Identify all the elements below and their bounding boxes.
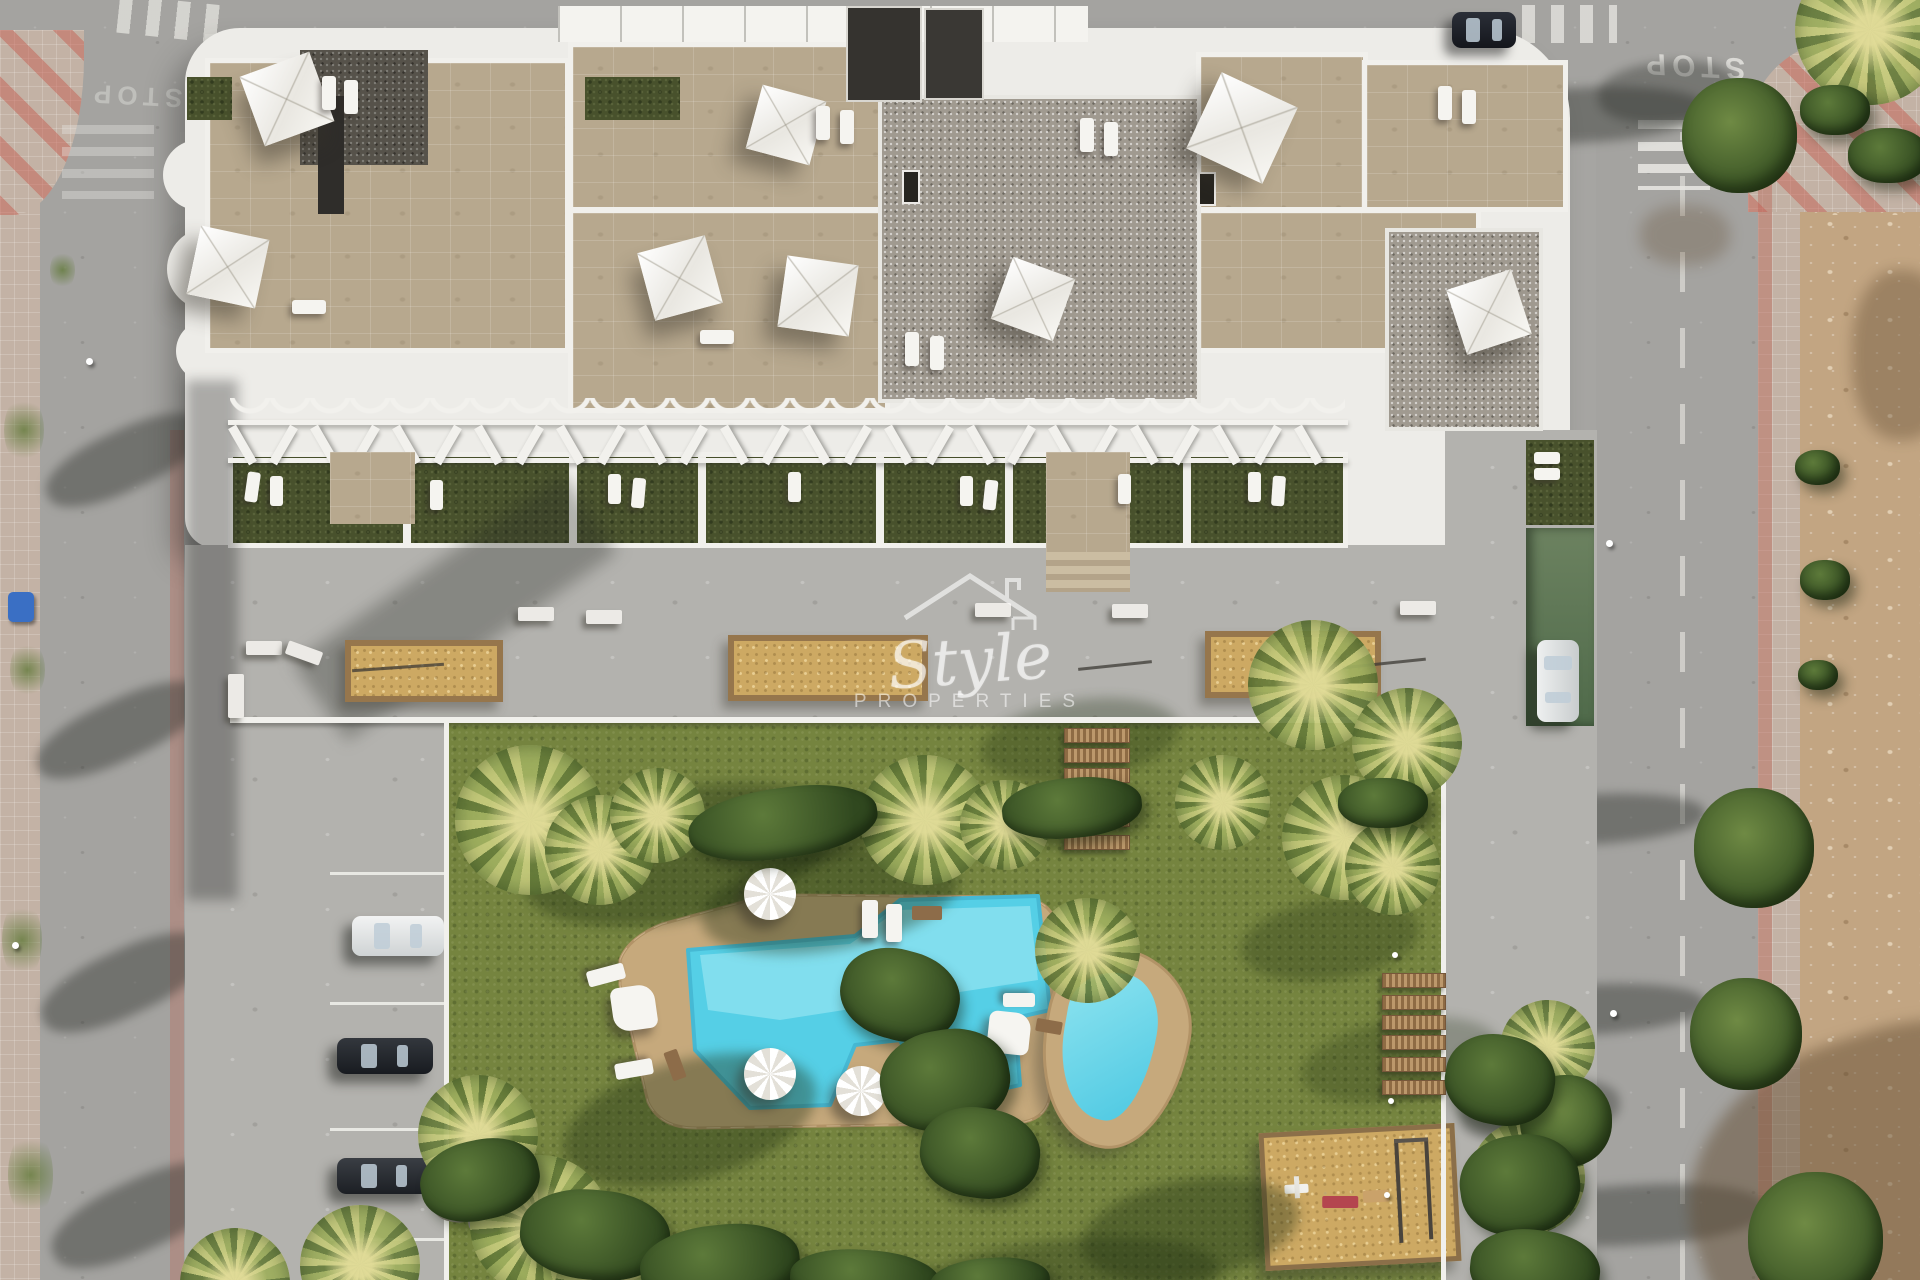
aerial-render-scene: STOP STOP [0, 0, 1920, 1280]
sun-lounger [1462, 90, 1476, 124]
terrace-bench [228, 674, 244, 718]
garden-lamp [1392, 952, 1398, 958]
sun-lounger [1248, 472, 1261, 502]
car-parked-white [352, 916, 444, 956]
sidewalk-weeds [50, 250, 75, 290]
terrace-bench [975, 603, 1011, 617]
garden-lamp [1388, 1098, 1394, 1104]
sun-lounger [886, 904, 902, 942]
sidewalk-weeds [10, 640, 45, 700]
fitness-bench-red [1322, 1196, 1358, 1208]
sun-lounger [960, 476, 973, 506]
wooden-bench [1382, 1035, 1446, 1050]
sun-lounger [292, 300, 326, 314]
street-lamp [12, 942, 19, 949]
building-top-rooms [558, 6, 1088, 42]
parking-stall-line [330, 1002, 445, 1005]
roof-elevator-box [924, 8, 984, 100]
crosswalk-top-right [1522, 5, 1617, 43]
left-curb-red-band [170, 430, 184, 1280]
sun-lounger [1534, 452, 1560, 464]
right-road-center-dashes [1680, 132, 1685, 1280]
fitness-frame-bar [1394, 1137, 1428, 1143]
pool-daybed [609, 983, 659, 1033]
sun-lounger [344, 80, 358, 114]
street-lamp [1606, 540, 1613, 547]
wooden-bench [1382, 1015, 1446, 1030]
sun-lounger [816, 106, 830, 140]
pool-parasol [744, 1048, 796, 1100]
roof-gravel-area [878, 95, 1201, 403]
sun-lounger [862, 900, 878, 938]
street-tree [1690, 978, 1802, 1090]
sun-lounger [1080, 118, 1094, 152]
street-lamp [1610, 1010, 1617, 1017]
terrace-bench [1400, 601, 1436, 615]
wooden-step [1064, 748, 1130, 763]
sun-lounger [1271, 476, 1286, 507]
sun-lounger [1104, 122, 1118, 156]
roof-skylight [902, 170, 920, 204]
sun-lounger [700, 330, 734, 344]
terrace-bench [518, 607, 554, 621]
crosswalk-left-faded [62, 125, 154, 199]
sun-lounger [631, 477, 647, 508]
wooden-bench [1382, 973, 1446, 988]
sun-lounger [788, 472, 801, 502]
rooftop-terrace [1362, 60, 1568, 212]
terrace-bench [1112, 604, 1148, 618]
sun-lounger [1118, 474, 1131, 504]
roof-elevator-box [846, 6, 922, 102]
sun-lounger [930, 336, 944, 370]
stop-marking-left: STOP [87, 78, 183, 114]
fitness-frame [1394, 1139, 1403, 1243]
fitness-frame [1424, 1139, 1433, 1239]
wooden-bench [1382, 1080, 1446, 1095]
sun-lounger [322, 76, 336, 110]
pool-mat [912, 906, 942, 920]
street-tree [1682, 78, 1797, 193]
sidewalk-weeds [4, 395, 44, 465]
sun-lounger [270, 476, 283, 506]
pergola-beam [228, 420, 1348, 425]
sun-lounger [430, 480, 443, 510]
entrance-steps [1046, 552, 1130, 592]
sun-lounger [905, 332, 919, 366]
parking-stall-line [330, 872, 445, 875]
roof-skylight [1198, 172, 1216, 206]
roof-hedge [585, 77, 680, 120]
recycling-bin [8, 592, 34, 622]
dirt-shrub [1795, 450, 1840, 485]
pool-parasol [836, 1066, 886, 1116]
sun-lounger [840, 110, 854, 144]
shade-sail [777, 255, 858, 336]
fitness-tstand-pole [1294, 1176, 1300, 1198]
sidewalk-weeds [8, 1130, 53, 1220]
car-parked-dark [337, 1158, 432, 1194]
dirt-shrub [1848, 128, 1920, 183]
car-parked-dark [337, 1038, 433, 1074]
dirt-shrub [1800, 560, 1850, 600]
terrace-bench [246, 641, 282, 655]
terrace-bench [586, 610, 622, 624]
sidewalk-weeds [2, 900, 42, 980]
shade-sail [186, 225, 269, 308]
private-garden [1191, 457, 1343, 543]
sun-lounger [1534, 468, 1560, 480]
sun-lounger [1003, 993, 1035, 1007]
dirt-shrub [1798, 660, 1838, 690]
garden-shrub [1338, 778, 1428, 828]
dirt-shrub [1800, 85, 1870, 135]
sand-planter [728, 635, 928, 701]
wooden-bench [1382, 995, 1446, 1010]
car-street-dark [1452, 12, 1516, 48]
car-ramp-white [1537, 640, 1579, 722]
street-tree [1694, 788, 1814, 908]
entrance-path [330, 452, 415, 524]
sun-lounger [608, 474, 621, 504]
wooden-step [1064, 728, 1130, 743]
garden-lamp [1384, 1192, 1390, 1198]
pool-parasol [744, 868, 796, 920]
street-lamp [86, 358, 93, 365]
roof-hedge [187, 77, 232, 120]
dirt-shadow [1640, 205, 1730, 265]
sun-lounger [1438, 86, 1452, 120]
wooden-bench [1382, 1057, 1446, 1072]
left-sidewalk [0, 130, 40, 1280]
